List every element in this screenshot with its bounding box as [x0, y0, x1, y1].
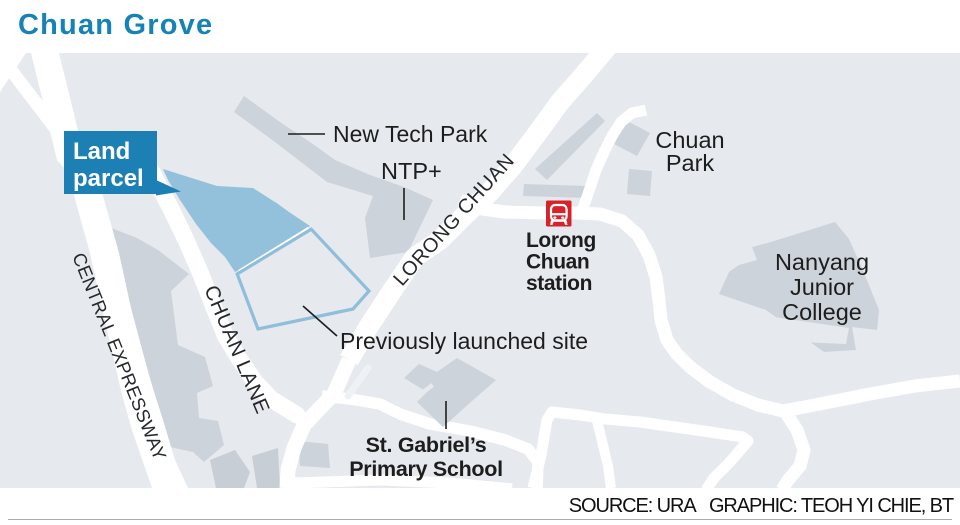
svg-text:Park: Park: [666, 150, 715, 176]
svg-text:Junior: Junior: [790, 274, 854, 300]
svg-text:station: station: [526, 272, 592, 295]
svg-text:Previously launched site: Previously launched site: [340, 328, 588, 354]
svg-text:Chuan: Chuan: [526, 251, 589, 274]
svg-text:Land: Land: [73, 138, 130, 165]
svg-text:Chuan Grove: Chuan Grove: [18, 9, 213, 41]
svg-text:parcel: parcel: [73, 165, 144, 192]
svg-text:College: College: [782, 299, 862, 325]
svg-text:Primary School: Primary School: [349, 457, 503, 481]
svg-text:St. Gabriel’s: St. Gabriel’s: [366, 433, 487, 457]
svg-text:Lorong: Lorong: [526, 229, 596, 252]
svg-text:Nanyang: Nanyang: [775, 249, 869, 275]
svg-text:NTP+: NTP+: [381, 158, 442, 184]
svg-text:New Tech Park: New Tech Park: [333, 121, 488, 147]
svg-text:SOURCE: URA GRAPHIC: TEOH YI: SOURCE: URA GRAPHIC: TEOH YI CHIE, BT: [569, 495, 954, 517]
